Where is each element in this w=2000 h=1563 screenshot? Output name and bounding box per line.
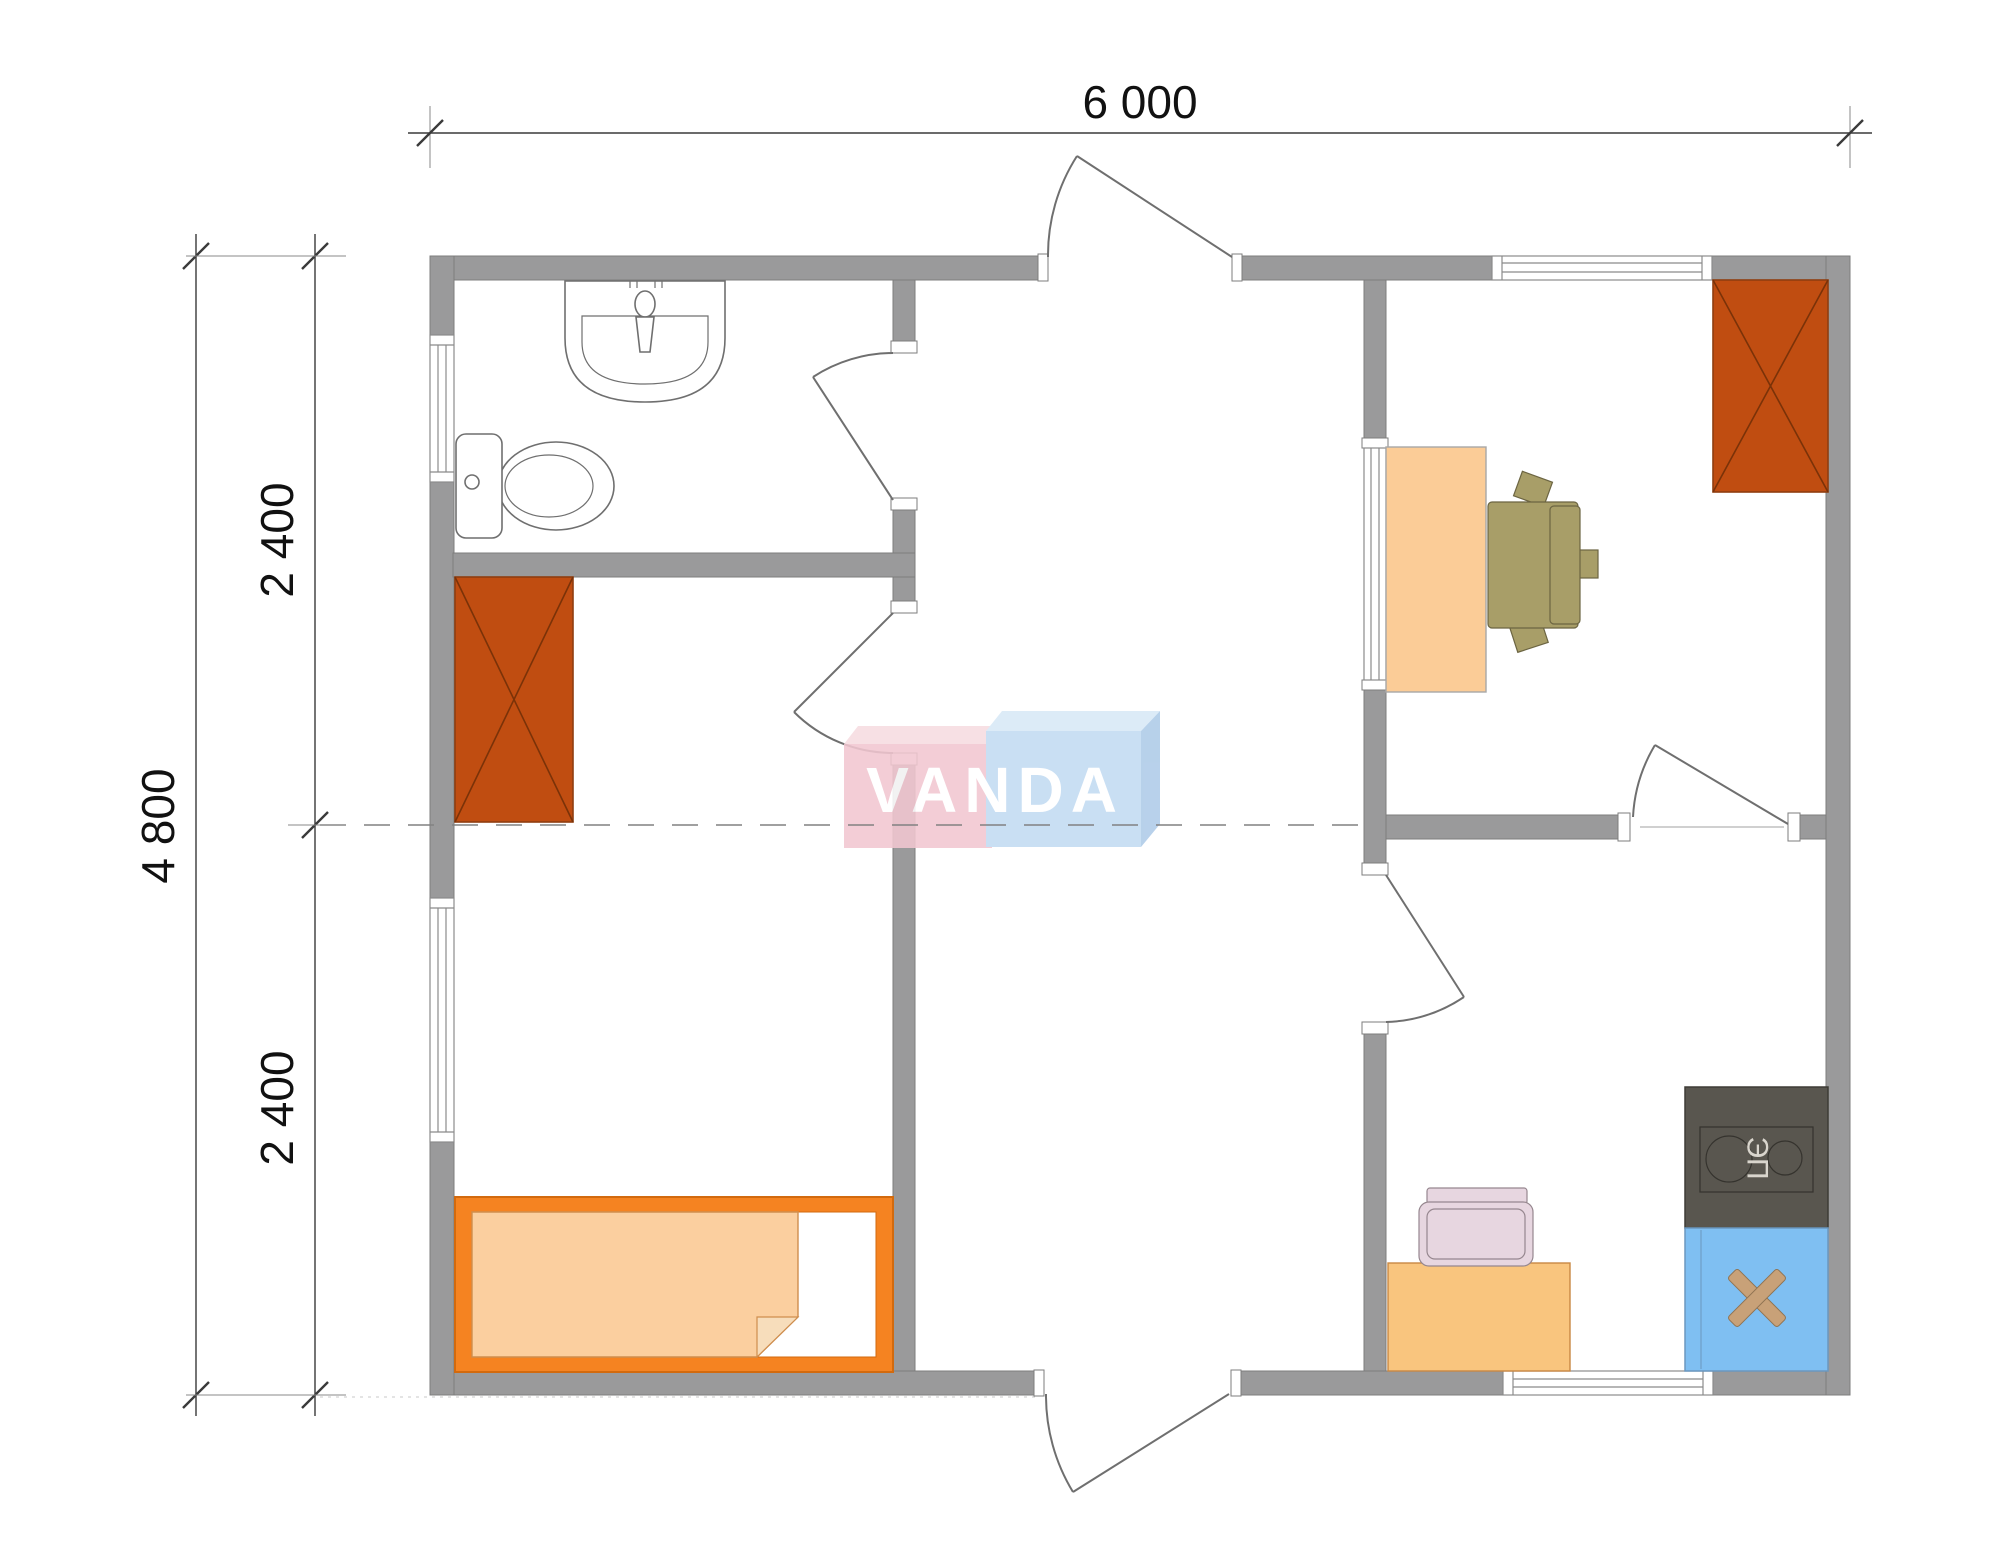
- mattress: [472, 1212, 798, 1357]
- dim-height-label: 4 800: [132, 768, 184, 883]
- kitchen-chair-seat: [1419, 1202, 1533, 1266]
- stove: ЭП: [1685, 1087, 1828, 1228]
- wall-hall-east-a: [1364, 280, 1386, 438]
- wall-divider-right: [1800, 815, 1826, 839]
- watermark: VANDA: [844, 711, 1160, 848]
- watermark-text: VANDA: [866, 754, 1124, 826]
- chair-backrest: [1550, 506, 1580, 624]
- wall-divider-left: [1386, 815, 1618, 839]
- wardrobe-office: [1713, 280, 1828, 492]
- faucet-icon: [635, 291, 655, 317]
- bed: [455, 1197, 893, 1372]
- floor-plan: ЭП: [0, 0, 2000, 1563]
- kitchen-chair: [1419, 1188, 1533, 1266]
- wall-left-upper: [430, 256, 454, 335]
- wall-hall-east-b: [1364, 690, 1386, 863]
- wall-bathroom-south: [453, 553, 915, 577]
- window-interior-office: [1364, 448, 1386, 680]
- floor-plan-drawing: ЭП: [0, 0, 2000, 1563]
- wall-right: [1826, 256, 1850, 1395]
- dim-lower-label: 2 400: [251, 1050, 303, 1165]
- window-bedroom: [430, 898, 454, 1142]
- wardrobe-bedroom: [455, 577, 573, 822]
- wall-bottom-left: [430, 1371, 1034, 1395]
- kitchen-table: [1388, 1263, 1570, 1371]
- window-top: [1492, 256, 1712, 280]
- wall-top-left: [430, 256, 1038, 280]
- stove-label: ЭП: [1741, 1136, 1774, 1179]
- desk: [1386, 447, 1486, 692]
- window-bottom: [1503, 1371, 1713, 1395]
- wall-hall-west-a: [893, 280, 915, 341]
- toilet: [456, 434, 614, 538]
- wall-hall-east-c: [1364, 1034, 1386, 1371]
- entrance-door-top: [1048, 156, 1232, 257]
- wall-left-middle: [430, 482, 454, 898]
- dim-width-label: 6 000: [1082, 76, 1197, 128]
- dim-upper-label: 2 400: [251, 482, 303, 597]
- wall-left-lower: [430, 1142, 454, 1395]
- wall-bottom-middle: [1241, 1371, 1503, 1395]
- exterior-door-bottom: [1046, 1394, 1229, 1492]
- window-bathroom: [430, 335, 454, 482]
- wall-top-middle: [1242, 256, 1492, 280]
- washbasin: [565, 281, 725, 402]
- sink-cabinet: [1685, 1228, 1828, 1371]
- wall-hall-west-c: [893, 765, 915, 1371]
